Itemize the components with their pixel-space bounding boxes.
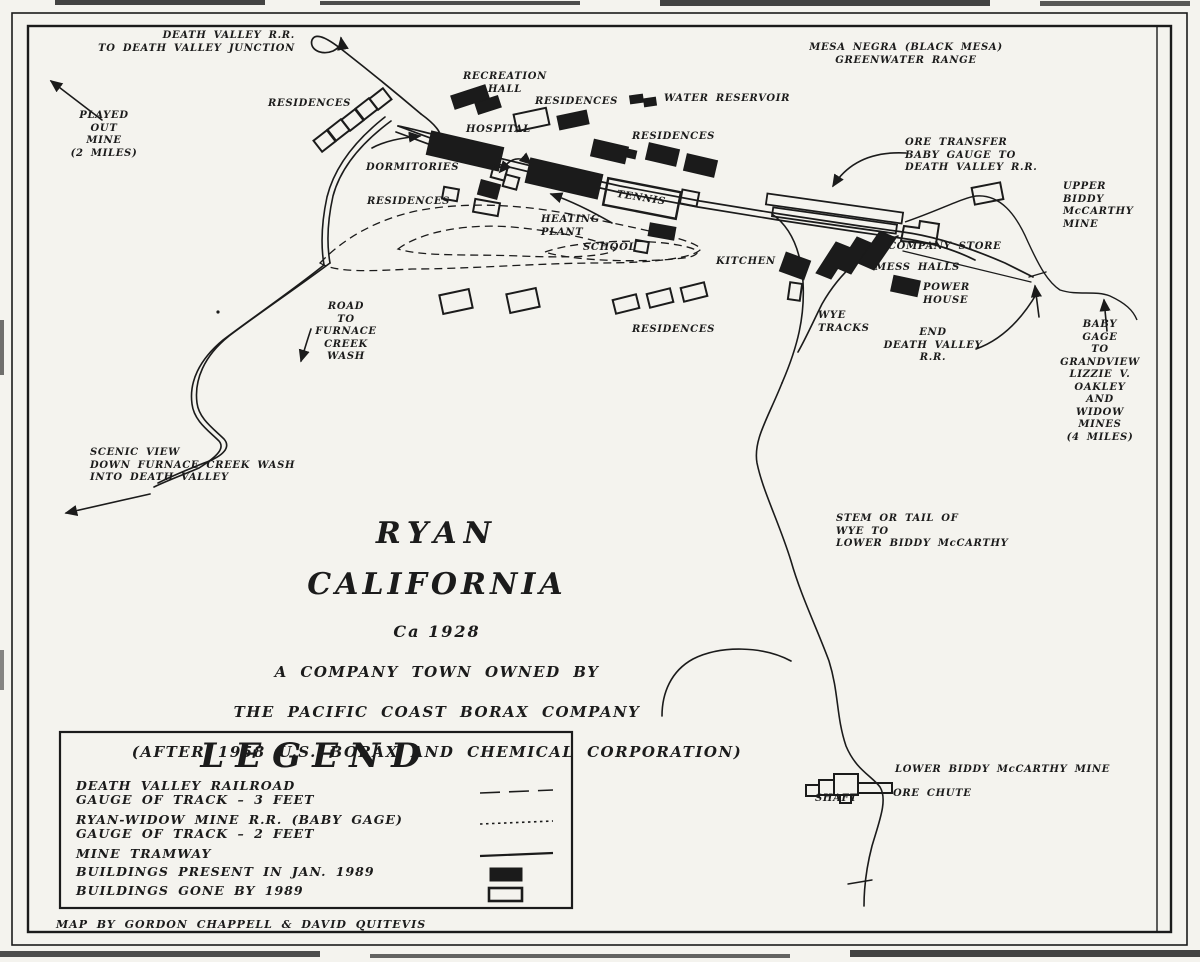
label-end-death-valley-rr: END DEATH VALLEY R.R. [884, 327, 983, 365]
label-residences-c2: RESIDENCES [632, 131, 715, 144]
map-credit: MAP BY GORDON CHAPPELL & DAVID QUITEVIS [56, 918, 426, 931]
building-water-reservoir [644, 97, 657, 107]
scan-smudge [850, 950, 1200, 957]
label-dormitories: DORMITORIES [366, 162, 459, 175]
building-gone-residence [473, 199, 500, 216]
building-gone-small [503, 174, 520, 189]
label-lower-biddy-mccarthy-mine: LOWER BIDDY McCARTHY MINE [895, 764, 1110, 777]
mine-headframe [834, 774, 858, 795]
building-gone-small [788, 282, 802, 301]
label-scenic-view: SCENIC VIEW DOWN FURNACE CREEK WASH INTO… [90, 447, 295, 485]
building-power-house [891, 275, 921, 296]
label-power-house: POWER HOUSE [923, 282, 970, 307]
ore-transfer-arrow [833, 153, 906, 186]
label-death-valley-rr-junction: DEATH VALLEY R.R. TO DEATH VALLEY JUNCTI… [95, 30, 295, 55]
track-tick [848, 880, 872, 884]
road-northwest [328, 121, 391, 263]
building-dormitory [525, 158, 603, 199]
label-mess-halls: MESS HALLS [875, 262, 960, 275]
label-water-reservoir: WATER RESERVOIR [664, 93, 790, 106]
map-title-date: Ca 1928 [132, 622, 743, 641]
road-furnace-arrow [301, 329, 311, 361]
building-gone-residence [369, 88, 391, 109]
label-played-out-mine: PLAYED OUT MINE (2 MILES) [71, 110, 138, 160]
building-residence [557, 110, 589, 130]
scan-smudge [370, 954, 790, 958]
building-gone-residence [506, 288, 539, 313]
label-school: SCHOOL [583, 242, 636, 255]
building-residence [591, 139, 629, 163]
label-company-store: COMPANY STORE [888, 241, 1001, 254]
label-recreation-hall: RECREATION HALL [463, 71, 547, 96]
legend-item-buildings-gone: BUILDINGS GONE BY 1989 [76, 884, 304, 898]
legend-symbol-baby-gage-line [480, 821, 553, 824]
label-mesa-negra: MESA NEGRA (BLACK MESA) GREENWATER RANGE [809, 42, 1003, 67]
map-title: RYAN [132, 519, 743, 549]
label-hospital: HOSPITAL [466, 124, 531, 137]
label-upper-biddy-mccarthy-mine: UPPER BIDDY McCARTHY MINE [1063, 181, 1134, 231]
road-northwest [322, 117, 385, 265]
scan-smudge [1040, 1, 1190, 6]
end-dvrr-up-arrow [1035, 286, 1039, 317]
label-baby-gage-to-grandview: BABY GAGE TO GRANDVIEW LIZZIE V. OAKLEY … [1050, 319, 1150, 444]
building-residence [645, 143, 679, 167]
map-ryan-california: DEATH VALLEY R.R. TO DEATH VALLEY JUNCTI… [0, 0, 1200, 962]
building-residence [683, 154, 717, 178]
mine-ore-chute [858, 783, 892, 793]
label-ore-chute: ORE CHUTE [893, 788, 972, 801]
town-roads [320, 205, 701, 270]
scan-smudge [0, 320, 4, 375]
map-subtitle-1: A COMPANY TOWN OWNED BY [132, 663, 743, 681]
building-gone-residence [613, 294, 640, 313]
building-gone-residence [313, 130, 335, 151]
legend-symbol-building-present [490, 868, 522, 881]
scan-smudge [660, 0, 990, 6]
legend-title: LEGEND [200, 736, 431, 776]
label-shaft: SHAFT [815, 793, 857, 806]
legend-symbol-building-gone [489, 888, 522, 901]
end-dvrr-pointer [976, 293, 1037, 349]
scan-smudge [320, 1, 580, 5]
map-title-state: CALIFORNIA [132, 570, 743, 600]
scan-smudge [0, 650, 4, 690]
stem-to-lower-biddy [756, 383, 883, 906]
building-gone-residence [439, 289, 472, 314]
label-residences-c1: RESIDENCES [535, 96, 618, 109]
map-subtitle-2: THE PACIFIC COAST BORAX COMPANY [132, 703, 743, 721]
label-heating-plant: HEATING PLANT [541, 214, 600, 239]
building-gone-small [634, 240, 649, 253]
label-residences-w: RESIDENCES [367, 196, 450, 209]
legend-item-buildings-present: BUILDINGS PRESENT IN JAN. 1989 [76, 865, 375, 879]
map-dot [216, 310, 219, 313]
label-residences-nw: RESIDENCES [268, 98, 351, 111]
building-gone-residence [647, 288, 674, 307]
building-heating-plant [477, 180, 500, 200]
legend-symbol-dvrr-line [480, 790, 553, 793]
label-wye-tracks: WYE TRACKS [818, 310, 870, 335]
building-small [626, 149, 637, 159]
building-kitchen [779, 252, 810, 280]
legend-symbol-tramway-line [480, 853, 553, 856]
label-kitchen: KITCHEN [716, 256, 776, 269]
label-road-to-furnace-creek-wash: ROAD TO FURNACE CREEK WASH [315, 301, 377, 364]
building-school [648, 223, 676, 240]
building-gone-residence [327, 119, 349, 140]
legend-item-dvrr: DEATH VALLEY RAILROAD GAUGE OF TRACK – 3… [76, 779, 314, 808]
scan-smudge [55, 0, 265, 5]
building-water-reservoir [630, 94, 644, 104]
legend-item-baby-gage: RYAN-WIDOW MINE R.R. (BABY GAGE) GAUGE O… [76, 813, 403, 842]
legend-item-mine-tramway: MINE TRAMWAY [76, 847, 211, 861]
label-stem-or-tail-of-wye: STEM OR TAIL OF WYE TO LOWER BIDDY McCAR… [836, 513, 1009, 551]
building-gone-residence [355, 98, 377, 119]
label-ore-transfer: ORE TRANSFER BABY GAUGE TO DEATH VALLEY … [905, 137, 1037, 175]
scan-smudge [0, 951, 320, 957]
building-gone-residence [681, 282, 708, 301]
building-gone-residence [341, 109, 363, 130]
label-residences-s: RESIDENCES [632, 324, 715, 337]
